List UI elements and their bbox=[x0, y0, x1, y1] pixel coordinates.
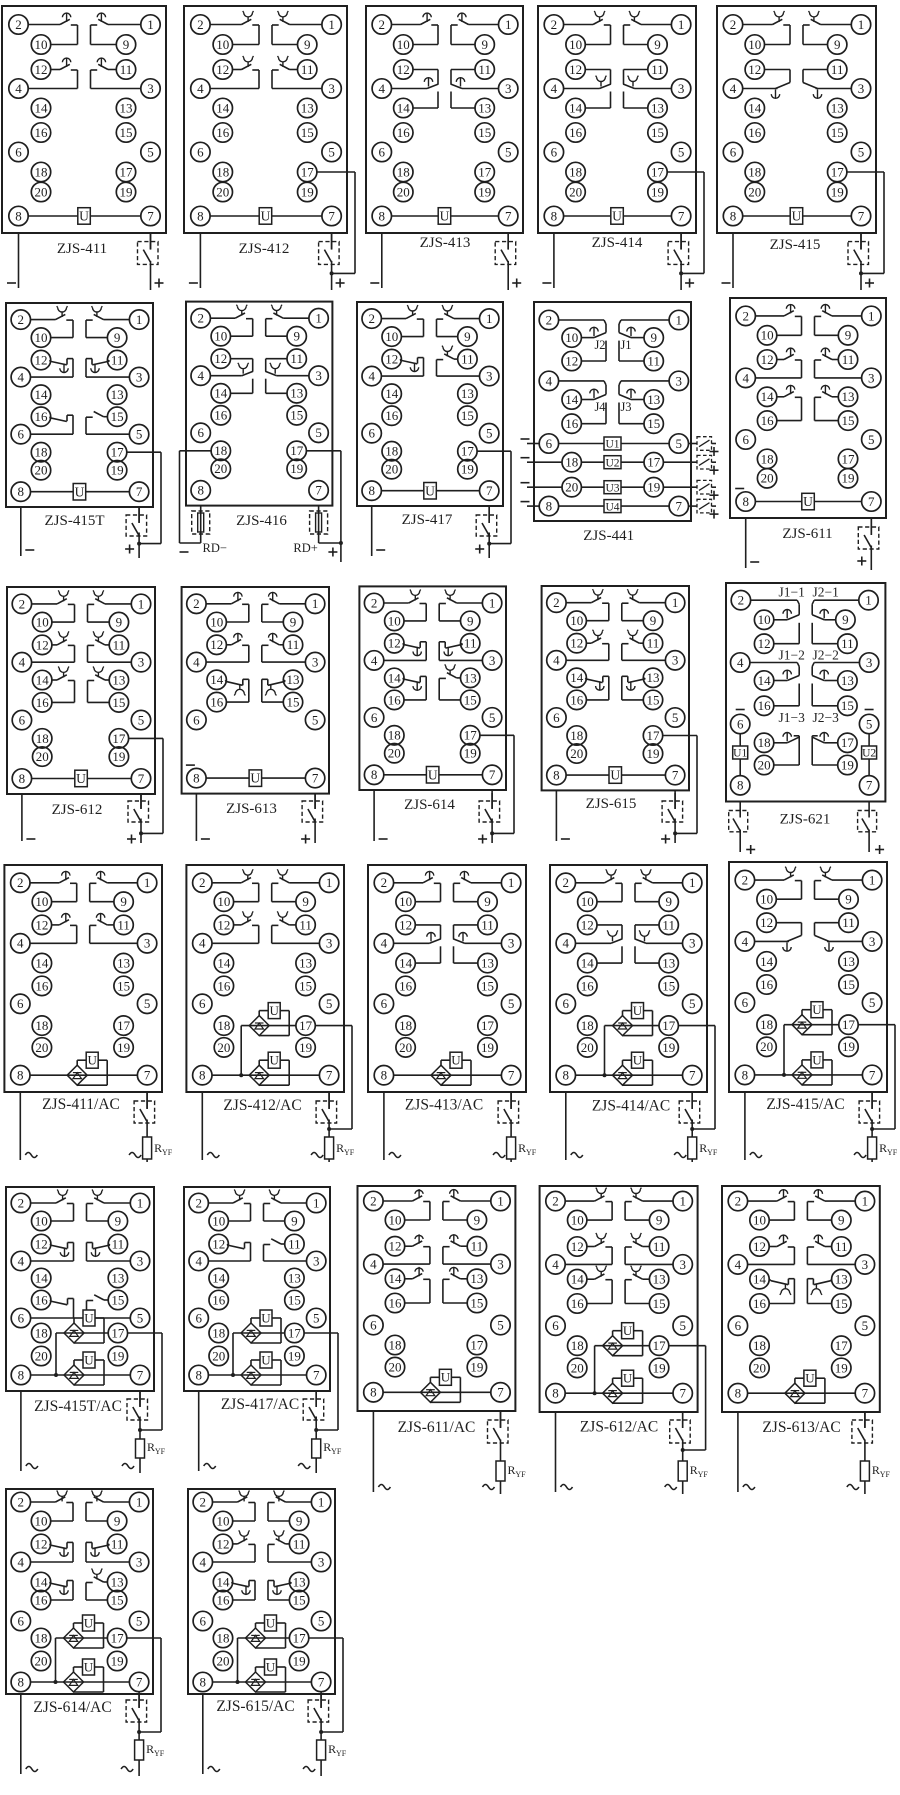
svg-text:U: U bbox=[633, 1053, 643, 1068]
svg-text:17: 17 bbox=[111, 445, 125, 460]
svg-text:R: R bbox=[879, 1141, 887, 1155]
svg-text:10: 10 bbox=[217, 894, 230, 909]
svg-text:19: 19 bbox=[288, 1348, 301, 1363]
svg-text:16: 16 bbox=[748, 125, 762, 140]
svg-text:5: 5 bbox=[136, 1613, 143, 1628]
svg-text:3: 3 bbox=[866, 655, 873, 670]
svg-text:13: 13 bbox=[117, 956, 130, 971]
svg-text:9: 9 bbox=[302, 894, 309, 909]
svg-text:ZJS-414/AC: ZJS-414/AC bbox=[592, 1098, 670, 1115]
svg-text:U: U bbox=[803, 494, 813, 509]
svg-text:20: 20 bbox=[35, 1040, 48, 1055]
svg-text:3: 3 bbox=[869, 934, 876, 949]
svg-text:YF: YF bbox=[331, 1447, 342, 1456]
svg-text:7: 7 bbox=[858, 208, 865, 223]
svg-text:2: 2 bbox=[199, 875, 206, 890]
svg-text:16: 16 bbox=[212, 1292, 226, 1307]
svg-text:14: 14 bbox=[216, 100, 230, 115]
svg-text:3: 3 bbox=[486, 369, 493, 384]
svg-text:17: 17 bbox=[835, 1338, 849, 1353]
svg-text:16: 16 bbox=[35, 1592, 49, 1607]
svg-text:6: 6 bbox=[737, 716, 744, 731]
svg-text:9: 9 bbox=[291, 1213, 298, 1228]
svg-text:12: 12 bbox=[571, 1239, 584, 1254]
svg-text:11: 11 bbox=[841, 636, 854, 651]
svg-text:2: 2 bbox=[730, 17, 737, 32]
svg-text:J2: J2 bbox=[594, 338, 605, 352]
svg-text:19: 19 bbox=[653, 1360, 666, 1375]
svg-text:8: 8 bbox=[735, 1386, 742, 1401]
svg-text:YF: YF bbox=[155, 1447, 166, 1456]
svg-text:ZJS-414: ZJS-414 bbox=[592, 235, 643, 251]
svg-text:15: 15 bbox=[293, 1592, 306, 1607]
svg-text:U: U bbox=[250, 771, 260, 786]
svg-text:ZJS-417: ZJS-417 bbox=[402, 512, 453, 528]
svg-text:18: 18 bbox=[212, 1325, 225, 1340]
svg-text:15: 15 bbox=[117, 978, 130, 993]
svg-text:6: 6 bbox=[18, 1310, 25, 1325]
svg-text:3: 3 bbox=[497, 1257, 504, 1272]
svg-text:7: 7 bbox=[868, 494, 875, 509]
svg-text:16: 16 bbox=[35, 125, 49, 140]
svg-text:R: R bbox=[147, 1440, 155, 1454]
svg-text:10: 10 bbox=[35, 37, 48, 52]
svg-text:U: U bbox=[266, 1659, 276, 1674]
svg-text:11: 11 bbox=[290, 351, 303, 366]
svg-text:ZJS-415T/AC: ZJS-415T/AC bbox=[34, 1398, 122, 1415]
svg-text:18: 18 bbox=[581, 1018, 594, 1033]
svg-text:4: 4 bbox=[193, 655, 200, 670]
svg-text:14: 14 bbox=[35, 387, 49, 402]
svg-text:5: 5 bbox=[672, 710, 679, 725]
svg-text:4: 4 bbox=[18, 1554, 25, 1569]
svg-text:J2−1: J2−1 bbox=[813, 584, 839, 599]
svg-text:9: 9 bbox=[474, 1212, 481, 1227]
svg-text:4: 4 bbox=[195, 1253, 202, 1268]
svg-text:17: 17 bbox=[111, 1325, 125, 1340]
svg-text:2: 2 bbox=[370, 1193, 377, 1208]
svg-text:6: 6 bbox=[15, 144, 22, 159]
svg-text:18: 18 bbox=[36, 731, 49, 746]
svg-text:13: 13 bbox=[831, 100, 844, 115]
svg-text:8: 8 bbox=[18, 484, 25, 499]
svg-text:5: 5 bbox=[318, 1613, 325, 1628]
svg-text:10: 10 bbox=[753, 1213, 766, 1228]
svg-text:U: U bbox=[610, 768, 620, 783]
svg-text:19: 19 bbox=[111, 1653, 124, 1668]
svg-text:17: 17 bbox=[288, 1325, 302, 1340]
svg-text:U: U bbox=[440, 209, 450, 224]
svg-text:17: 17 bbox=[653, 1338, 667, 1353]
svg-text:3: 3 bbox=[144, 936, 151, 951]
svg-text:8: 8 bbox=[197, 208, 204, 223]
svg-text:8: 8 bbox=[195, 1367, 202, 1382]
svg-text:7: 7 bbox=[672, 768, 679, 783]
svg-text:17: 17 bbox=[301, 164, 315, 179]
svg-text:18: 18 bbox=[760, 1017, 773, 1032]
svg-text:J1: J1 bbox=[620, 338, 631, 352]
svg-text:J1−1: J1−1 bbox=[779, 584, 805, 599]
svg-text:15: 15 bbox=[111, 1292, 124, 1307]
svg-text:20: 20 bbox=[753, 1360, 766, 1375]
svg-text:11: 11 bbox=[471, 1239, 484, 1254]
svg-text:13: 13 bbox=[841, 673, 854, 688]
svg-text:15: 15 bbox=[112, 695, 125, 710]
svg-text:U: U bbox=[261, 209, 271, 224]
svg-text:1: 1 bbox=[497, 1193, 504, 1208]
svg-text:20: 20 bbox=[217, 1653, 230, 1668]
svg-text:2: 2 bbox=[552, 1194, 559, 1209]
svg-text:16: 16 bbox=[570, 692, 584, 707]
svg-text:8: 8 bbox=[368, 483, 375, 498]
svg-text:4: 4 bbox=[368, 369, 375, 384]
svg-text:3: 3 bbox=[672, 653, 679, 668]
svg-text:ZJS-412/AC: ZJS-412/AC bbox=[223, 1097, 301, 1114]
svg-text:3: 3 bbox=[318, 1554, 325, 1569]
svg-text:6: 6 bbox=[563, 996, 570, 1011]
svg-text:13: 13 bbox=[299, 956, 312, 971]
svg-text:2: 2 bbox=[368, 311, 375, 326]
svg-text:2: 2 bbox=[18, 312, 25, 327]
svg-text:4: 4 bbox=[730, 81, 737, 96]
svg-text:12: 12 bbox=[35, 917, 48, 932]
svg-text:14: 14 bbox=[571, 1272, 585, 1287]
svg-text:20: 20 bbox=[35, 1653, 48, 1668]
svg-text:4: 4 bbox=[551, 81, 558, 96]
svg-text:1: 1 bbox=[328, 17, 335, 32]
svg-text:14: 14 bbox=[748, 100, 762, 115]
svg-text:12: 12 bbox=[35, 1536, 48, 1551]
svg-text:YF: YF bbox=[162, 1148, 173, 1157]
svg-text:10: 10 bbox=[35, 894, 48, 909]
svg-text:11: 11 bbox=[117, 917, 130, 932]
svg-text:11: 11 bbox=[651, 62, 664, 77]
svg-text:3: 3 bbox=[505, 81, 512, 96]
svg-text:14: 14 bbox=[217, 956, 231, 971]
svg-text:1: 1 bbox=[138, 596, 145, 611]
svg-text:16: 16 bbox=[210, 695, 224, 710]
svg-text:RD+: RD+ bbox=[293, 541, 317, 555]
svg-text:17: 17 bbox=[647, 728, 661, 743]
svg-text:J1−3: J1−3 bbox=[779, 710, 806, 725]
svg-text:4: 4 bbox=[553, 653, 560, 668]
svg-text:7: 7 bbox=[147, 208, 154, 223]
svg-text:20: 20 bbox=[212, 1348, 225, 1363]
svg-text:1: 1 bbox=[136, 1494, 143, 1509]
svg-text:17: 17 bbox=[841, 735, 855, 750]
svg-text:5: 5 bbox=[326, 996, 333, 1011]
svg-text:1: 1 bbox=[672, 595, 679, 610]
svg-text:15: 15 bbox=[653, 1296, 666, 1311]
svg-text:U: U bbox=[75, 484, 85, 499]
svg-text:3: 3 bbox=[862, 1257, 869, 1272]
svg-text:19: 19 bbox=[842, 471, 855, 486]
svg-text:19: 19 bbox=[290, 461, 303, 476]
svg-text:1: 1 bbox=[865, 593, 872, 608]
svg-text:U: U bbox=[428, 767, 438, 782]
svg-text:U1: U1 bbox=[733, 747, 747, 759]
svg-text:7: 7 bbox=[678, 208, 685, 223]
svg-text:U: U bbox=[812, 1002, 822, 1017]
svg-text:7: 7 bbox=[328, 208, 335, 223]
svg-text:7: 7 bbox=[679, 1386, 686, 1401]
svg-text:U: U bbox=[633, 1003, 643, 1018]
svg-text:18: 18 bbox=[571, 1338, 584, 1353]
svg-text:19: 19 bbox=[464, 746, 477, 761]
svg-text:3: 3 bbox=[138, 655, 145, 670]
svg-text:6: 6 bbox=[381, 996, 388, 1011]
svg-text:18: 18 bbox=[758, 735, 771, 750]
svg-text:ZJS-613/AC: ZJS-613/AC bbox=[762, 1419, 840, 1436]
svg-text:15: 15 bbox=[301, 125, 314, 140]
svg-text:14: 14 bbox=[35, 1574, 49, 1589]
svg-text:20: 20 bbox=[565, 480, 578, 495]
svg-text:18: 18 bbox=[389, 1337, 402, 1352]
svg-text:14: 14 bbox=[35, 1270, 49, 1285]
svg-text:7: 7 bbox=[508, 1068, 515, 1083]
svg-text:14: 14 bbox=[399, 956, 413, 971]
svg-text:11: 11 bbox=[111, 1536, 124, 1551]
svg-text:U2: U2 bbox=[862, 747, 876, 759]
svg-text:20: 20 bbox=[388, 746, 401, 761]
svg-text:17: 17 bbox=[120, 164, 134, 179]
svg-text:R: R bbox=[699, 1141, 707, 1155]
svg-text:15: 15 bbox=[842, 413, 855, 428]
svg-text:ZJS-415: ZJS-415 bbox=[770, 237, 821, 253]
svg-text:12: 12 bbox=[569, 62, 582, 77]
svg-text:17: 17 bbox=[842, 451, 856, 466]
svg-text:13: 13 bbox=[461, 386, 474, 401]
svg-text:16: 16 bbox=[217, 978, 231, 993]
svg-text:8: 8 bbox=[371, 767, 378, 782]
svg-text:11: 11 bbox=[112, 1236, 125, 1251]
svg-text:20: 20 bbox=[748, 184, 761, 199]
svg-text:17: 17 bbox=[651, 164, 665, 179]
svg-text:4: 4 bbox=[563, 936, 570, 951]
svg-text:13: 13 bbox=[464, 670, 477, 685]
svg-text:1: 1 bbox=[678, 17, 685, 32]
svg-text:U1: U1 bbox=[605, 439, 619, 451]
svg-text:U2: U2 bbox=[605, 457, 619, 469]
svg-text:6: 6 bbox=[19, 713, 26, 728]
svg-text:R: R bbox=[323, 1440, 331, 1454]
svg-text:7: 7 bbox=[676, 499, 683, 514]
svg-text:2: 2 bbox=[742, 873, 749, 888]
svg-text:1: 1 bbox=[505, 17, 512, 32]
svg-text:15: 15 bbox=[481, 978, 494, 993]
svg-text:ZJS-614: ZJS-614 bbox=[404, 797, 455, 813]
svg-text:12: 12 bbox=[388, 636, 401, 651]
svg-text:13: 13 bbox=[112, 672, 125, 687]
svg-text:1: 1 bbox=[679, 1194, 686, 1209]
svg-text:6: 6 bbox=[18, 427, 25, 442]
svg-text:J2−3: J2−3 bbox=[813, 710, 840, 725]
svg-text:11: 11 bbox=[842, 915, 855, 930]
svg-text:10: 10 bbox=[210, 614, 223, 629]
svg-text:17: 17 bbox=[662, 1018, 676, 1033]
svg-text:19: 19 bbox=[293, 1653, 306, 1668]
svg-text:9: 9 bbox=[656, 1213, 663, 1228]
svg-text:2: 2 bbox=[371, 595, 378, 610]
svg-text:14: 14 bbox=[760, 954, 774, 969]
svg-text:7: 7 bbox=[136, 484, 143, 499]
svg-text:3: 3 bbox=[858, 81, 865, 96]
svg-text:ZJS-411: ZJS-411 bbox=[57, 241, 107, 257]
svg-text:17: 17 bbox=[470, 1337, 484, 1352]
svg-text:12: 12 bbox=[217, 1536, 230, 1551]
svg-text:10: 10 bbox=[565, 330, 578, 345]
svg-text:12: 12 bbox=[35, 62, 48, 77]
svg-text:11: 11 bbox=[842, 352, 855, 367]
svg-text:9: 9 bbox=[290, 614, 297, 629]
svg-text:14: 14 bbox=[581, 956, 595, 971]
svg-text:2: 2 bbox=[546, 312, 553, 327]
svg-text:6: 6 bbox=[195, 1310, 202, 1325]
svg-text:ZJS-413: ZJS-413 bbox=[420, 235, 471, 251]
svg-text:15: 15 bbox=[299, 978, 312, 993]
svg-text:6: 6 bbox=[553, 710, 560, 725]
svg-text:ZJS-611/AC: ZJS-611/AC bbox=[398, 1419, 476, 1436]
svg-text:6: 6 bbox=[552, 1318, 559, 1333]
svg-text:7: 7 bbox=[497, 1385, 504, 1400]
svg-text:19: 19 bbox=[835, 1360, 848, 1375]
svg-text:7: 7 bbox=[318, 1674, 325, 1689]
svg-text:13: 13 bbox=[478, 100, 491, 115]
svg-text:R: R bbox=[507, 1463, 515, 1477]
svg-text:13: 13 bbox=[470, 1271, 483, 1286]
svg-text:R: R bbox=[336, 1141, 344, 1155]
svg-text:11: 11 bbox=[287, 637, 300, 652]
svg-text:15: 15 bbox=[461, 408, 474, 423]
svg-text:11: 11 bbox=[464, 636, 477, 651]
svg-text:11: 11 bbox=[647, 636, 660, 651]
svg-text:12: 12 bbox=[217, 917, 230, 932]
svg-text:10: 10 bbox=[761, 328, 774, 343]
svg-text:10: 10 bbox=[385, 329, 398, 344]
svg-text:20: 20 bbox=[569, 184, 582, 199]
svg-text:5: 5 bbox=[868, 432, 875, 447]
svg-text:U: U bbox=[623, 1371, 633, 1386]
svg-text:13: 13 bbox=[287, 672, 300, 687]
svg-text:YF: YF bbox=[154, 1749, 165, 1758]
svg-text:10: 10 bbox=[569, 37, 582, 52]
svg-text:14: 14 bbox=[385, 386, 399, 401]
svg-text:9: 9 bbox=[293, 329, 300, 344]
svg-text:15: 15 bbox=[120, 125, 133, 140]
svg-text:17: 17 bbox=[842, 1017, 856, 1032]
svg-text:6: 6 bbox=[193, 712, 200, 727]
svg-text:7: 7 bbox=[313, 1367, 320, 1382]
svg-text:YF: YF bbox=[344, 1148, 355, 1157]
svg-text:15: 15 bbox=[662, 978, 675, 993]
svg-text:12: 12 bbox=[212, 1236, 225, 1251]
svg-text:YF: YF bbox=[336, 1749, 347, 1758]
svg-text:16: 16 bbox=[397, 125, 411, 140]
svg-text:12: 12 bbox=[758, 636, 771, 651]
svg-text:8: 8 bbox=[19, 771, 26, 786]
svg-text:15: 15 bbox=[831, 125, 844, 140]
svg-text:19: 19 bbox=[120, 184, 133, 199]
svg-text:8: 8 bbox=[197, 483, 204, 498]
svg-text:13: 13 bbox=[842, 954, 855, 969]
svg-text:13: 13 bbox=[647, 392, 660, 407]
svg-text:ZJS-415/AC: ZJS-415/AC bbox=[766, 1096, 844, 1113]
svg-text:6: 6 bbox=[370, 1318, 377, 1333]
svg-text:9: 9 bbox=[120, 894, 127, 909]
svg-text:ZJS-441: ZJS-441 bbox=[583, 528, 634, 544]
svg-text:7: 7 bbox=[138, 771, 145, 786]
svg-text:14: 14 bbox=[753, 1272, 767, 1287]
svg-text:U: U bbox=[270, 1003, 280, 1018]
svg-text:ZJS-612/AC: ZJS-612/AC bbox=[580, 1419, 658, 1436]
svg-text:J3: J3 bbox=[620, 400, 631, 414]
svg-text:2: 2 bbox=[19, 596, 26, 611]
svg-text:18: 18 bbox=[35, 1630, 48, 1645]
svg-text:15: 15 bbox=[470, 1295, 483, 1310]
svg-text:4: 4 bbox=[200, 1554, 207, 1569]
svg-text:19: 19 bbox=[647, 480, 660, 495]
svg-text:14: 14 bbox=[389, 1271, 403, 1286]
svg-text:YF: YF bbox=[880, 1470, 891, 1479]
svg-text:5: 5 bbox=[147, 144, 154, 159]
svg-text:13: 13 bbox=[288, 1270, 301, 1285]
svg-text:16: 16 bbox=[385, 408, 399, 423]
svg-text:12: 12 bbox=[760, 915, 773, 930]
svg-text:U: U bbox=[425, 483, 435, 498]
svg-text:16: 16 bbox=[399, 978, 413, 993]
svg-text:5: 5 bbox=[678, 144, 685, 159]
svg-text:15: 15 bbox=[842, 977, 855, 992]
svg-text:14: 14 bbox=[388, 670, 402, 685]
svg-text:6: 6 bbox=[18, 1613, 25, 1628]
svg-text:U: U bbox=[76, 771, 86, 786]
svg-text:ZJS-611: ZJS-611 bbox=[782, 526, 832, 542]
svg-text:10: 10 bbox=[758, 612, 771, 627]
svg-text:7: 7 bbox=[137, 1367, 144, 1382]
svg-text:ZJS-614/AC: ZJS-614/AC bbox=[33, 1699, 111, 1716]
svg-text:11: 11 bbox=[301, 62, 314, 77]
svg-text:R: R bbox=[146, 1742, 154, 1756]
svg-text:14: 14 bbox=[397, 100, 411, 115]
svg-text:4: 4 bbox=[18, 370, 25, 385]
svg-text:5: 5 bbox=[679, 1318, 686, 1333]
svg-text:9: 9 bbox=[484, 894, 491, 909]
svg-text:11: 11 bbox=[299, 917, 312, 932]
svg-text:2: 2 bbox=[15, 17, 22, 32]
svg-text:6: 6 bbox=[742, 995, 749, 1010]
svg-text:15: 15 bbox=[651, 125, 664, 140]
svg-text:1: 1 bbox=[318, 1494, 325, 1509]
svg-text:17: 17 bbox=[481, 1018, 495, 1033]
svg-text:3: 3 bbox=[489, 653, 496, 668]
svg-text:2: 2 bbox=[195, 1195, 202, 1210]
svg-text:2: 2 bbox=[379, 17, 386, 32]
svg-text:5: 5 bbox=[144, 996, 151, 1011]
svg-text:6: 6 bbox=[197, 144, 204, 159]
svg-text:20: 20 bbox=[570, 746, 583, 761]
svg-text:19: 19 bbox=[831, 184, 844, 199]
svg-text:13: 13 bbox=[290, 386, 303, 401]
svg-text:5: 5 bbox=[858, 144, 865, 159]
svg-text:8: 8 bbox=[17, 1068, 24, 1083]
svg-text:10: 10 bbox=[388, 613, 401, 628]
svg-text:7: 7 bbox=[312, 771, 319, 786]
svg-text:17: 17 bbox=[461, 444, 475, 459]
svg-text:RD−: RD− bbox=[202, 541, 226, 555]
svg-text:5: 5 bbox=[312, 712, 319, 727]
svg-text:15: 15 bbox=[111, 409, 124, 424]
svg-text:2: 2 bbox=[563, 875, 570, 890]
